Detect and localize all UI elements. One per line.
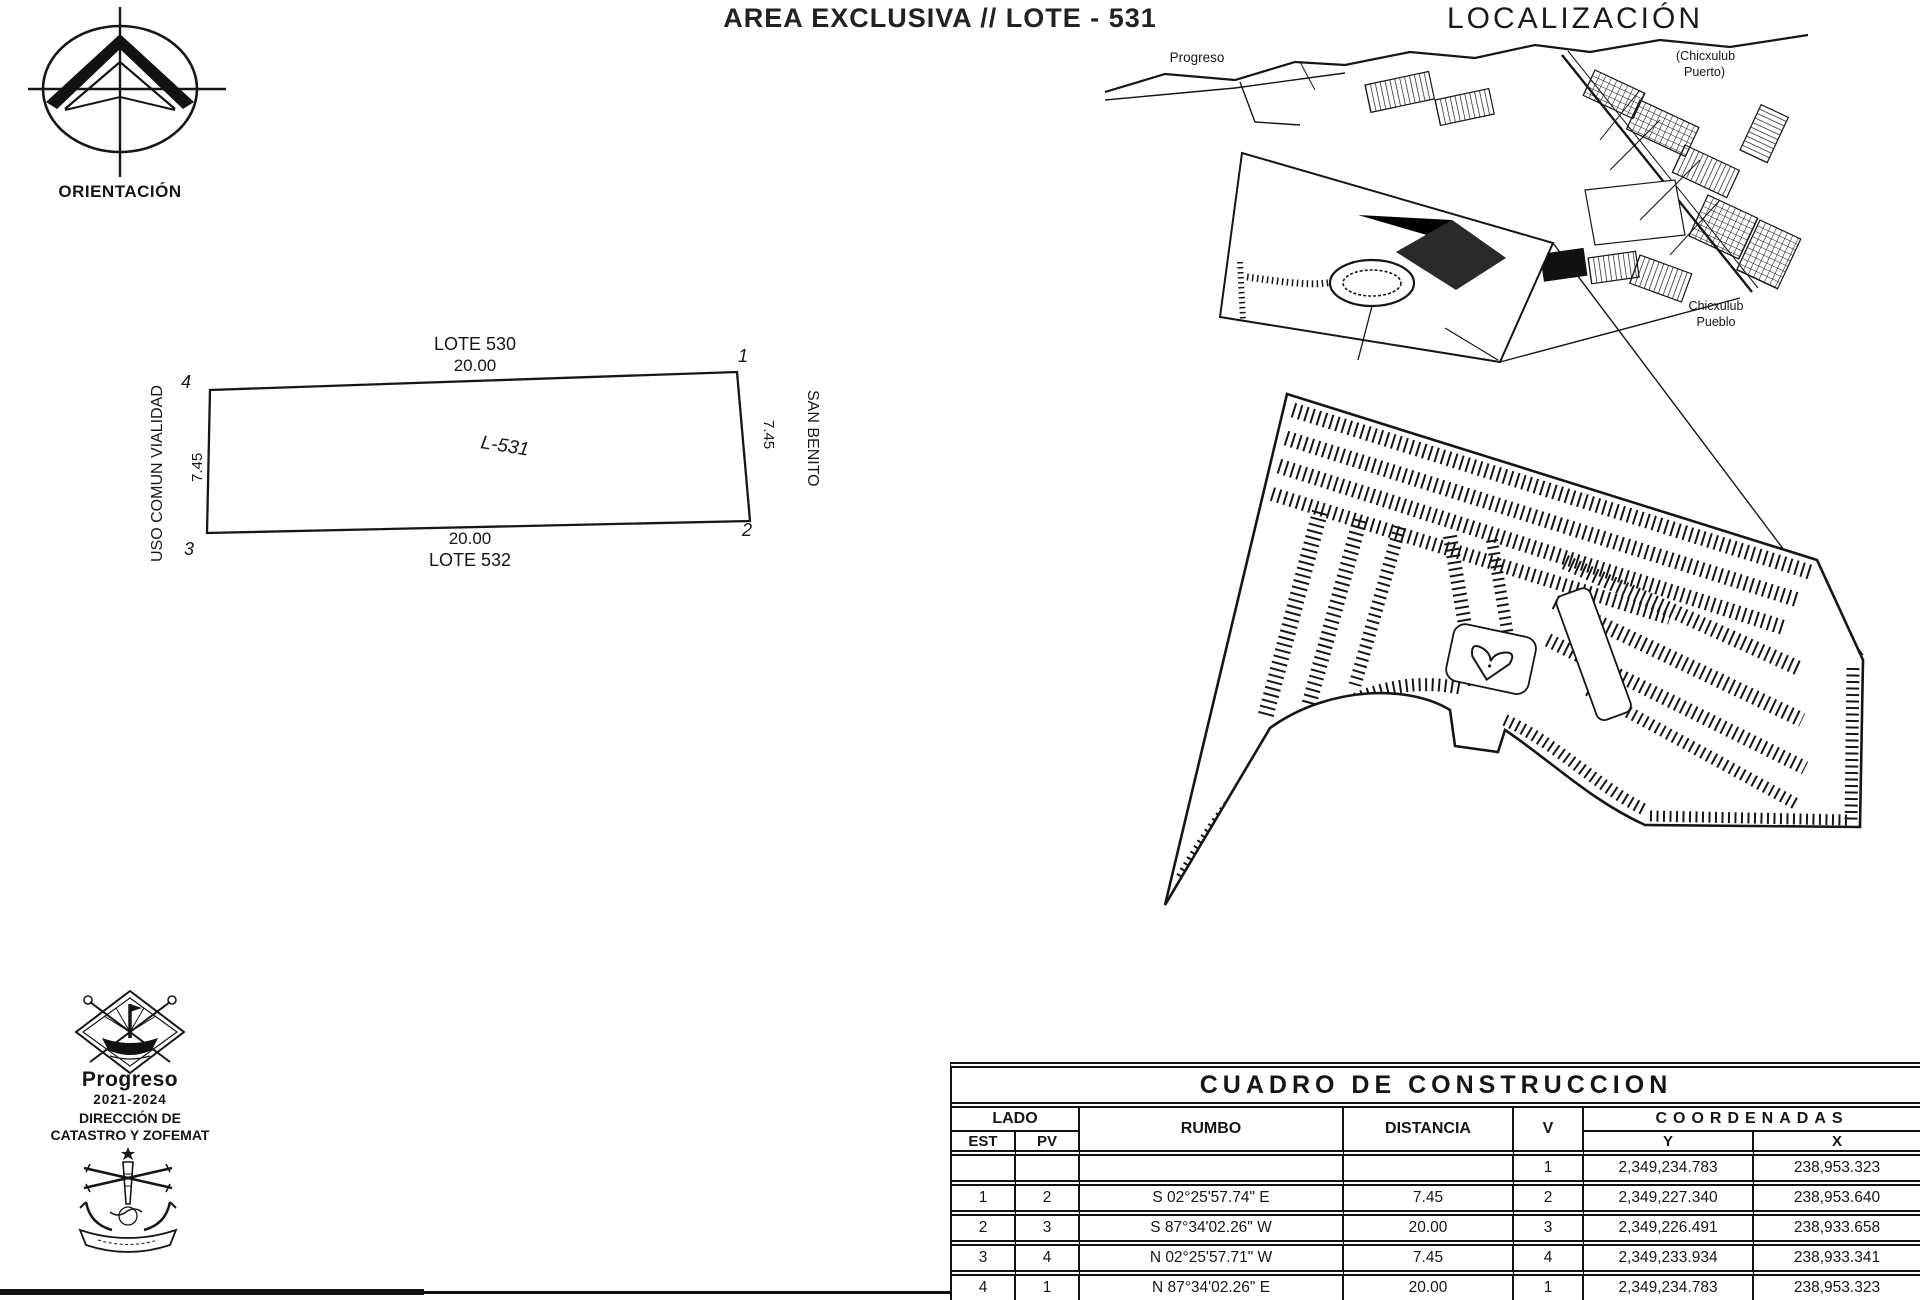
stamp-municipality: Progreso <box>30 1068 230 1092</box>
west-length-label: 7.45 <box>189 453 206 482</box>
table-cell-distancia: 20.00 <box>1344 1216 1514 1246</box>
sheet-border-bottom-thick <box>0 1289 424 1295</box>
table-cell-pv <box>1016 1156 1080 1186</box>
col-header-coordenadas: COORDENADAS <box>1584 1108 1920 1132</box>
table-title: CUADRO DE CONSTRUCCION <box>952 1068 1920 1108</box>
table-cell-pv: 3 <box>1016 1216 1080 1246</box>
table-cell-distancia <box>1344 1156 1514 1186</box>
table-cell-est: 1 <box>952 1186 1016 1216</box>
table-cell-x: 238,953.323 <box>1754 1276 1920 1300</box>
sheet-border-bottom-thin <box>424 1291 952 1294</box>
vertex-1-label: 1 <box>738 346 748 366</box>
north-lot-label: LOTE 530 <box>434 334 516 354</box>
vertex-4-label: 4 <box>181 372 191 392</box>
table-cell-distancia: 7.45 <box>1344 1246 1514 1276</box>
plan-sheet: AREA EXCLUSIVA // LOTE - 531 LOCALIZACIÓ… <box>0 0 1920 1300</box>
table-cell-v: 3 <box>1514 1216 1584 1246</box>
progreso-label: Progreso <box>1170 50 1225 65</box>
chicxulub-puerto-label-1: (Chicxulub <box>1676 49 1735 63</box>
table-cell-est: 3 <box>952 1246 1016 1276</box>
lot-plan-drawing: LOTE 530 20.00 1 4 2 3 L-531 20.00 LOTE … <box>140 330 870 680</box>
subdivision-map <box>1165 394 1863 905</box>
stamp-department-line2: CATASTRO Y ZOFEMAT <box>30 1127 230 1143</box>
table-cell-x: 238,953.323 <box>1754 1156 1920 1186</box>
table-cell-x: 238,933.658 <box>1754 1216 1920 1246</box>
col-header-y: Y <box>1584 1132 1754 1156</box>
col-header-est: EST <box>952 1132 1016 1156</box>
table-cell-rumbo: S 02°25'57.74" E <box>1080 1186 1344 1216</box>
table-cell-y: 2,349,227.340 <box>1584 1186 1754 1216</box>
table-cell-distancia: 20.00 <box>1344 1276 1514 1300</box>
inset-map <box>1220 153 1553 362</box>
south-lot-label: LOTE 532 <box>429 550 511 570</box>
table-cell-v: 4 <box>1514 1246 1584 1276</box>
west-street-label: USO COMUN VIALIDAD <box>149 385 166 562</box>
col-header-v: V <box>1514 1108 1584 1156</box>
chicxulub-pueblo-label-1: Chicxulub <box>1689 299 1744 313</box>
col-header-rumbo: RUMBO <box>1080 1108 1344 1156</box>
col-header-pv: PV <box>1016 1132 1080 1156</box>
table-cell-y: 2,349,234.783 <box>1584 1276 1754 1300</box>
table-cell-v: 1 <box>1514 1156 1584 1186</box>
table-cell-rumbo: N 87°34'02.26" E <box>1080 1276 1344 1300</box>
table-cell-x: 238,953.640 <box>1754 1186 1920 1216</box>
vertex-2-label: 2 <box>741 520 752 540</box>
lot-label: L-531 <box>479 432 530 460</box>
col-header-x: X <box>1754 1132 1920 1156</box>
table-cell-pv: 2 <box>1016 1186 1080 1216</box>
stamp-department-line1: DIRECCIÓN DE <box>30 1110 230 1126</box>
col-header-distancia: DISTANCIA <box>1344 1108 1514 1156</box>
table-cell-v: 2 <box>1514 1186 1584 1216</box>
vertex-3-label: 3 <box>184 539 194 559</box>
stamp-period: 2021-2024 <box>30 1092 230 1107</box>
table-cell-est <box>952 1156 1016 1186</box>
table-cell-v: 1 <box>1514 1276 1584 1300</box>
table-cell-rumbo <box>1080 1156 1344 1186</box>
compass-icon <box>20 5 235 185</box>
east-length-label: 7.45 <box>760 420 777 449</box>
table-cell-pv: 4 <box>1016 1246 1080 1276</box>
chicxulub-puerto-label-2: Puerto) <box>1684 65 1725 79</box>
orientation-label: ORIENTACIÓN <box>15 182 225 202</box>
progreso-seal-icon <box>68 988 192 1076</box>
table-cell-rumbo: N 02°25'57.71" W <box>1080 1246 1344 1276</box>
table-cell-rumbo: S 87°34'02.26" W <box>1080 1216 1344 1246</box>
east-street-label: SAN BENITO <box>804 390 821 487</box>
col-header-lado: LADO <box>952 1108 1080 1132</box>
table-cell-y: 2,349,234.783 <box>1584 1156 1754 1186</box>
table-cell-x: 238,933.341 <box>1754 1246 1920 1276</box>
table-cell-est: 4 <box>952 1276 1016 1300</box>
pueblo-map <box>1540 51 1801 302</box>
zofemat-seal-icon <box>66 1146 190 1254</box>
construction-table: CUADRO DE CONSTRUCCION LADO RUMBO DISTAN… <box>950 1062 1920 1300</box>
table-cell-distancia: 7.45 <box>1344 1186 1514 1216</box>
north-length-label: 20.00 <box>454 356 497 375</box>
chicxulub-pueblo-label-2: Pueblo <box>1697 315 1736 329</box>
south-length-label: 20.00 <box>449 529 492 548</box>
table-cell-y: 2,349,226.491 <box>1584 1216 1754 1246</box>
table-cell-pv: 1 <box>1016 1276 1080 1300</box>
localization-map: Progreso (Chicxulub Puerto) Chicxulub Pu… <box>940 30 1920 950</box>
table-cell-y: 2,349,233.934 <box>1584 1246 1754 1276</box>
table-cell-est: 2 <box>952 1216 1016 1246</box>
